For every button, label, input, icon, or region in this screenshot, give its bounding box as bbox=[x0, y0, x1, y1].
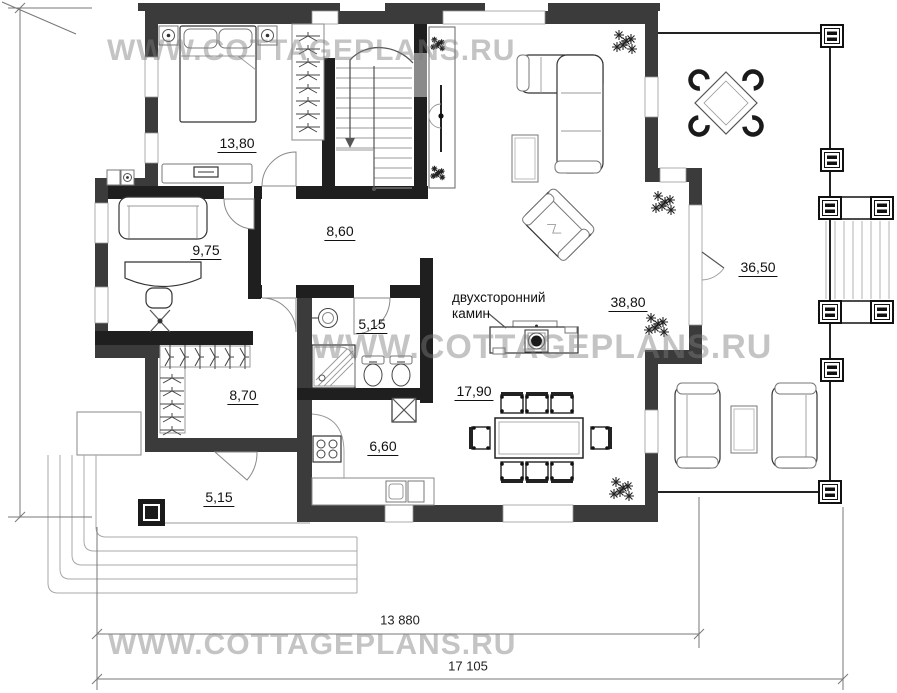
room-label-bedroom: 13,80 bbox=[217, 135, 256, 153]
room-label-hall: 8,60 bbox=[324, 223, 355, 241]
fireplace-note-line2: камин bbox=[452, 306, 545, 322]
corner-unit bbox=[107, 170, 134, 185]
washbasin bbox=[312, 309, 338, 328]
kitchen-furniture bbox=[312, 414, 434, 505]
stove bbox=[313, 436, 341, 462]
room-label-corridor: 8,70 bbox=[227, 387, 258, 405]
vent-shaft bbox=[392, 398, 416, 422]
pergola-slats bbox=[826, 221, 889, 299]
entry-door bbox=[215, 452, 257, 480]
terrace-dining-set bbox=[690, 71, 763, 136]
fireplace-note: двухсторонний камин bbox=[452, 290, 545, 322]
desk-chair bbox=[146, 288, 172, 332]
room-label-kitchen: 6,60 bbox=[367, 438, 398, 456]
corridor-door bbox=[262, 298, 296, 332]
kitchen-sink bbox=[386, 481, 424, 502]
study-desk bbox=[125, 262, 201, 287]
terrace-coffee-table bbox=[731, 406, 757, 453]
bedroom-door bbox=[262, 152, 296, 186]
tv-stand bbox=[162, 164, 252, 183]
watermark-top: WWW.COTTAGEPLANS.RU bbox=[107, 34, 515, 68]
room-label-living: 38,80 bbox=[608, 294, 647, 312]
room-label-study: 9,75 bbox=[190, 242, 221, 260]
room-label-porch: 5,15 bbox=[203, 489, 234, 507]
floor-plan-page: 13,80 9,75 8,60 5,15 8,70 5,15 6,60 17,9… bbox=[0, 0, 897, 693]
side-table bbox=[512, 135, 538, 182]
room-label-dining: 17,90 bbox=[454, 383, 493, 401]
room-label-terrace: 36,50 bbox=[738, 259, 777, 277]
terrace-sofa-left bbox=[675, 383, 720, 468]
study-door bbox=[224, 199, 254, 229]
terrace-lounge bbox=[675, 383, 817, 468]
study-sofa bbox=[119, 197, 207, 239]
watermark-middle: WWW.COTTAGEPLANS.RU bbox=[312, 328, 772, 367]
terrace-sofa-right bbox=[772, 383, 817, 468]
living-armchair bbox=[521, 187, 596, 262]
terrace-door bbox=[702, 252, 724, 280]
watermark-bottom: WWW.COTTAGEPLANS.RU bbox=[108, 628, 516, 662]
stairs bbox=[336, 48, 413, 191]
living-furniture bbox=[512, 55, 603, 262]
porch-column bbox=[138, 499, 165, 526]
dining-set bbox=[469, 392, 612, 483]
dimension-bottom-inner: 13 880 bbox=[380, 613, 420, 628]
dining-table bbox=[495, 418, 583, 458]
fireplace-note-line1: двухсторонний bbox=[452, 290, 545, 306]
study-furniture bbox=[119, 197, 207, 332]
